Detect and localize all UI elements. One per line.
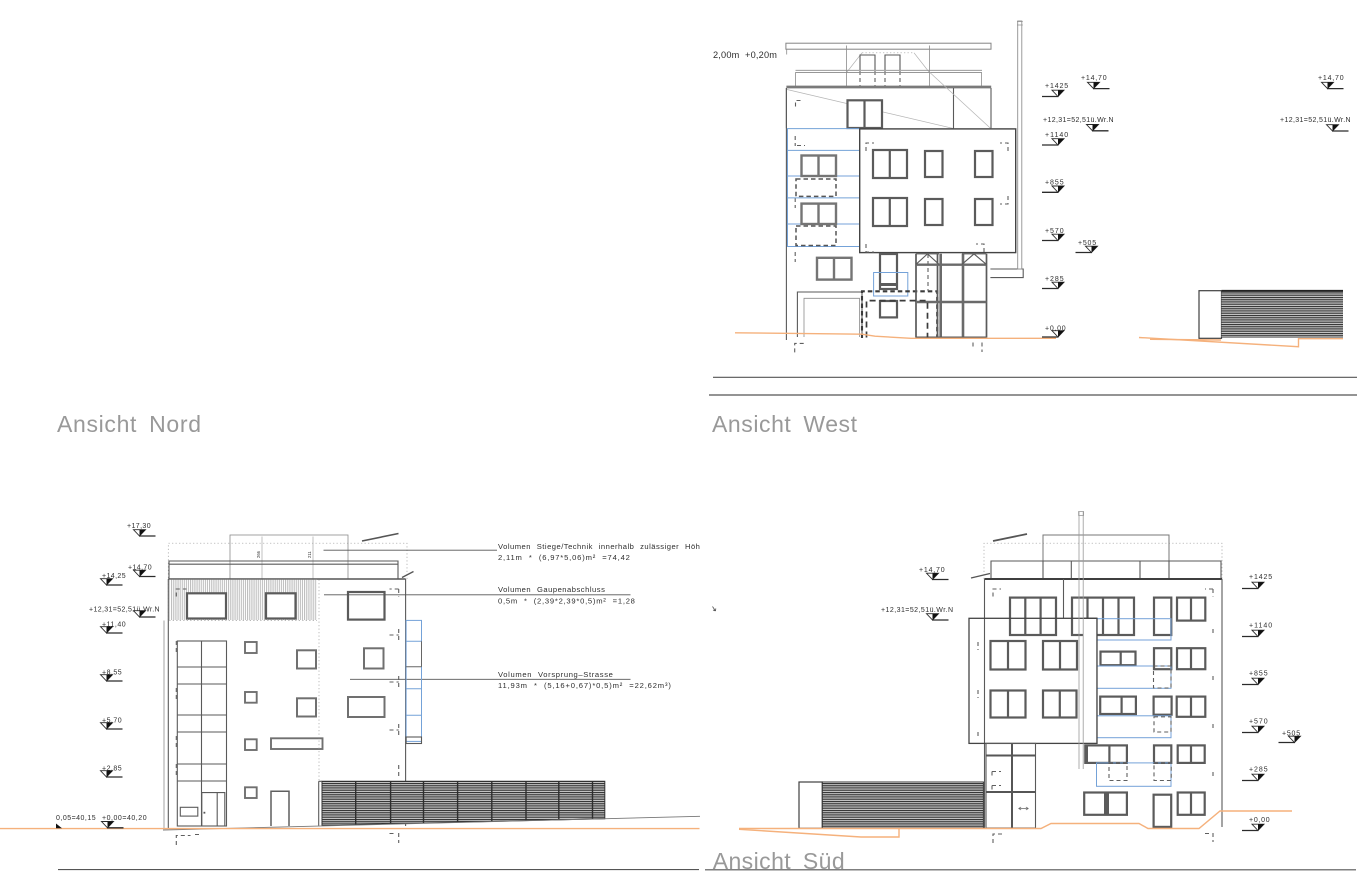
svg-text:Volumen Stiege/Technik innerha: Volumen Stiege/Technik innerhalb zulässi… bbox=[498, 542, 700, 551]
svg-text:+285: +285 bbox=[1249, 767, 1268, 774]
svg-text:266: 266 bbox=[256, 550, 261, 558]
svg-text:+1425: +1425 bbox=[1045, 83, 1069, 90]
svg-text:+12,31=52,51ü.Wr.N: +12,31=52,51ü.Wr.N bbox=[881, 607, 954, 614]
svg-text:Volumen Gaupenabschluss: Volumen Gaupenabschluss bbox=[498, 585, 605, 594]
svg-text:Ansicht Nord: Ansicht Nord bbox=[57, 411, 203, 437]
svg-text:+0,00: +0,00 bbox=[1249, 817, 1270, 824]
svg-text:+12,31=52,51ü.Wr.N: +12,31=52,51ü.Wr.N bbox=[1280, 117, 1351, 124]
svg-text:2,00m +0,20m: 2,00m +0,20m bbox=[713, 50, 777, 60]
svg-text:0,5m * (2,39*2,39*0,5)m² =1,28: 0,5m * (2,39*2,39*0,5)m² =1,28 bbox=[498, 597, 635, 606]
svg-text:+570: +570 bbox=[1249, 719, 1268, 726]
svg-text:+855: +855 bbox=[1249, 671, 1268, 678]
svg-text:0,05=40,15: 0,05=40,15 bbox=[56, 815, 96, 822]
svg-text:Volumen Vorsprung–Strasse: Volumen Vorsprung–Strasse bbox=[498, 670, 613, 679]
svg-text:+0,00=40,20: +0,00=40,20 bbox=[102, 815, 147, 822]
svg-text:+12,31=52,51ü.Wr.N: +12,31=52,51ü.Wr.N bbox=[89, 607, 160, 614]
svg-text:Ansicht Süd: Ansicht Süd bbox=[713, 848, 847, 874]
svg-text:+12,31=52,51ü.Wr.N: +12,31=52,51ü.Wr.N bbox=[1043, 117, 1114, 124]
svg-text:+14,70: +14,70 bbox=[1081, 75, 1107, 82]
svg-text:211: 211 bbox=[307, 551, 312, 558]
svg-text:Ansicht West: Ansicht West bbox=[712, 411, 859, 437]
svg-text:11,93m * (5,16+0,67)*0,5)m² =2: 11,93m * (5,16+0,67)*0,5)m² =22,62m³) bbox=[498, 681, 671, 690]
svg-text:+1140: +1140 bbox=[1249, 623, 1273, 630]
svg-text:+1140: +1140 bbox=[1045, 132, 1069, 139]
svg-text:2,11m * (6,97*5,06)m² =74,42: 2,11m * (6,97*5,06)m² =74,42 bbox=[498, 553, 630, 562]
svg-text:+17,30: +17,30 bbox=[127, 523, 151, 530]
svg-text:+855: +855 bbox=[1045, 180, 1064, 187]
svg-text:+1425: +1425 bbox=[1249, 574, 1273, 581]
svg-text:+14,70: +14,70 bbox=[1318, 75, 1344, 82]
